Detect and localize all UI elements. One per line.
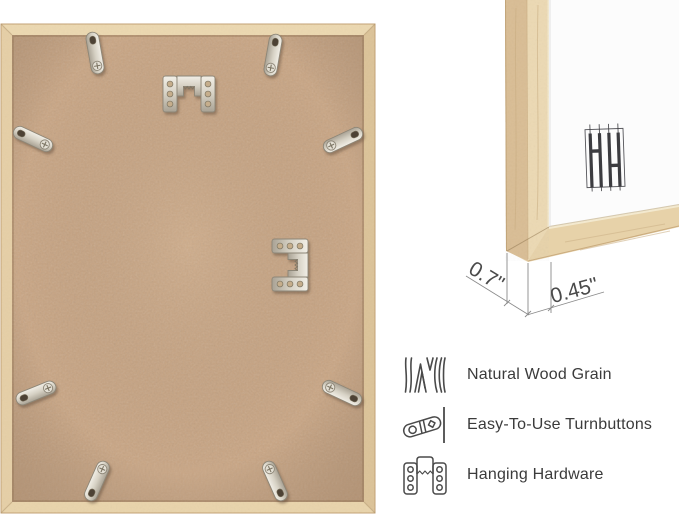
corner-view-panel: 0.7" 0.45" [430,0,679,340]
feature-label: Natural Wood Grain [467,366,612,384]
feature-label: Hanging Hardware [467,466,604,484]
mdf-backing-board [12,35,364,502]
frame-back-panel [0,0,390,523]
wood-grain-icon [400,353,450,397]
frame-side-stile [505,0,550,261]
feature-row-wood-grain: Natural Wood Grain [400,353,679,397]
turnbutton-icon [400,403,450,447]
face-dimension-label: 0.45" [548,273,601,308]
feature-list: Natural Wood Grain Easy-To-Use Turnbutto… [400,353,679,503]
product-infographic: 0.7" 0.45" Natural Wood Grain [0,0,679,523]
hanging-hardware-icon [400,453,450,497]
feature-row-hanging-hardware: Hanging Hardware [400,453,679,497]
mat-board [549,0,679,227]
depth-dimension-label: 0.7" [465,257,508,296]
feature-label: Easy-To-Use Turnbuttons [467,416,652,434]
feature-row-turnbuttons: Easy-To-Use Turnbuttons [400,403,679,447]
